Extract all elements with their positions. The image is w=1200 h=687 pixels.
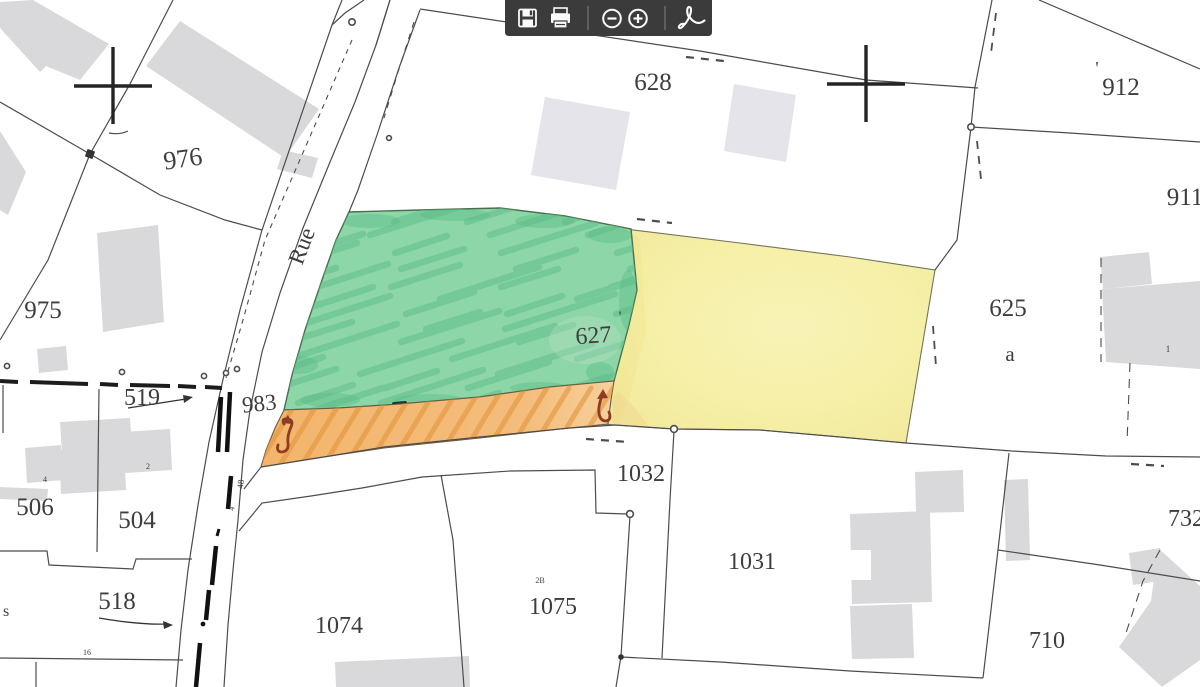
svg-text:975: 975 <box>24 297 62 324</box>
svg-text:a: a <box>1005 342 1015 366</box>
svg-text:912: 912 <box>1102 74 1140 101</box>
svg-text:627: 627 <box>575 322 613 350</box>
svg-text:628: 628 <box>634 69 672 96</box>
svg-text:48: 48 <box>235 479 246 490</box>
svg-text:506: 506 <box>16 494 54 521</box>
svg-text:2B: 2B <box>535 576 544 585</box>
svg-text:16: 16 <box>83 648 91 657</box>
svg-text:983: 983 <box>241 389 278 417</box>
svg-text:2: 2 <box>146 462 150 471</box>
svg-text:': ' <box>619 309 622 326</box>
svg-text:1: 1 <box>1166 344 1171 354</box>
svg-text:732: 732 <box>1168 506 1200 532</box>
svg-text:710: 710 <box>1029 628 1065 654</box>
svg-text:1074: 1074 <box>315 613 363 639</box>
svg-text:519: 519 <box>124 385 160 411</box>
svg-text:976: 976 <box>161 142 204 176</box>
svg-text:1031: 1031 <box>728 549 776 575</box>
svg-text:518: 518 <box>98 588 136 615</box>
svg-text:1032: 1032 <box>617 461 665 487</box>
svg-text:911: 911 <box>1167 184 1200 211</box>
svg-text:s: s <box>3 603 9 620</box>
svg-text:504: 504 <box>118 507 156 534</box>
svg-text:4: 4 <box>43 475 47 484</box>
svg-text:1075: 1075 <box>529 594 577 620</box>
svg-text:625: 625 <box>989 295 1027 322</box>
svg-text:': ' <box>1095 58 1098 78</box>
